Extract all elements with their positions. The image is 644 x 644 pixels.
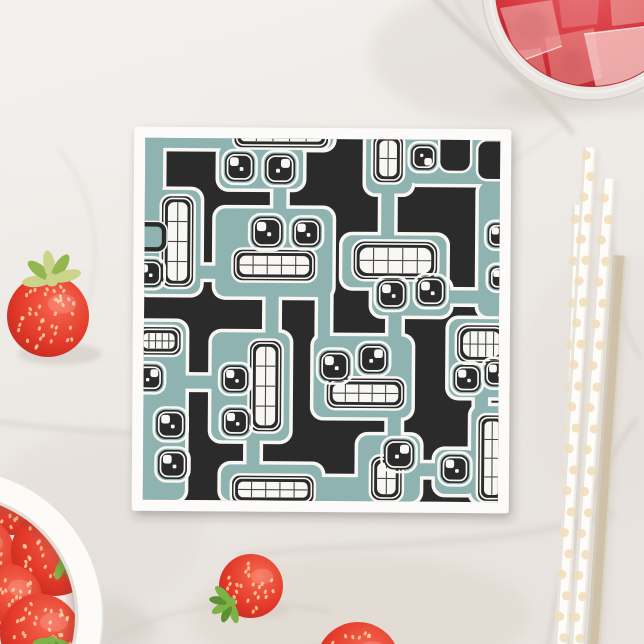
drink-glass xyxy=(482,0,644,112)
napkin-product xyxy=(131,120,516,514)
grid-pill xyxy=(231,474,315,505)
grid-pill xyxy=(232,248,316,282)
grid-window xyxy=(248,339,283,432)
grid-window xyxy=(372,133,404,183)
scene-photo xyxy=(0,0,644,644)
strawberry xyxy=(7,275,89,357)
napkin-pattern xyxy=(131,120,516,507)
product-photo xyxy=(0,0,644,644)
grid-pill xyxy=(325,377,405,410)
ice-cube xyxy=(558,0,600,28)
ice-cube xyxy=(610,0,644,26)
